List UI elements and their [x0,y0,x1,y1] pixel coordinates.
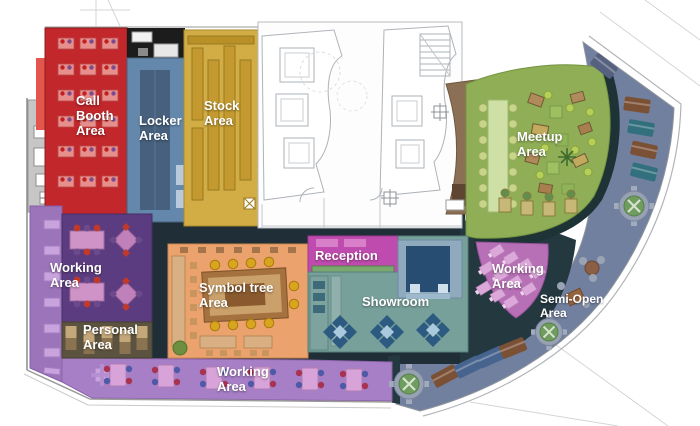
cad-label-box [446,200,464,210]
floor-plan: Call Booth Area Locker Area Stock Area M… [0,0,700,426]
floor-plan-drawing [0,0,700,426]
